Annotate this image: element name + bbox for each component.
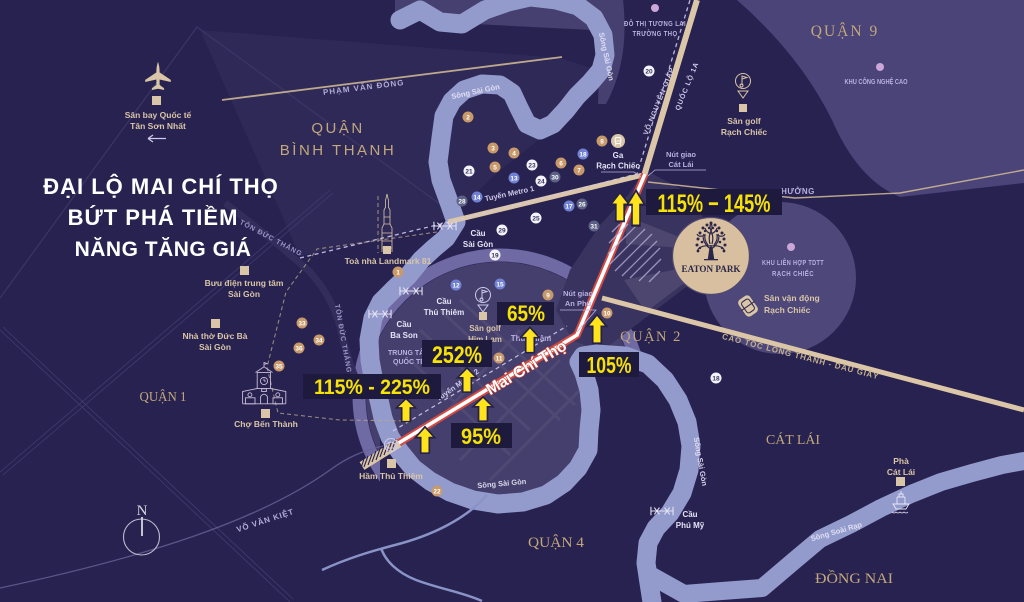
svg-text:252%: 252%	[432, 342, 482, 369]
svg-text:21: 21	[465, 168, 473, 175]
svg-text:9: 9	[546, 292, 550, 299]
svg-text:65%: 65%	[507, 301, 545, 326]
svg-text:N: N	[137, 503, 148, 519]
svg-text:Thủ Thiêm: Thủ Thiêm	[424, 308, 464, 317]
svg-text:Cầu: Cầu	[436, 297, 451, 306]
svg-text:Nút giao: Nút giao	[666, 150, 696, 159]
svg-text:Rạch Chiếc: Rạch Chiếc	[721, 127, 768, 137]
svg-text:30: 30	[551, 174, 559, 181]
svg-text:11: 11	[496, 355, 503, 362]
svg-text:1: 1	[396, 269, 400, 276]
svg-text:18: 18	[579, 151, 587, 158]
svg-text:ĐẠI LỘ MAI CHÍ THỌ: ĐẠI LỘ MAI CHÍ THỌ	[43, 174, 279, 199]
svg-text:KHU LIÊN HỢP TDTT: KHU LIÊN HỢP TDTT	[762, 258, 824, 267]
svg-text:105%: 105%	[587, 352, 632, 378]
svg-text:7: 7	[577, 167, 581, 174]
svg-text:18: 18	[712, 375, 720, 382]
svg-text:17: 17	[565, 203, 573, 210]
svg-text:Cầu: Cầu	[470, 229, 485, 238]
svg-text:15: 15	[496, 281, 504, 288]
svg-text:Rạch Chiếc: Rạch Chiếc	[596, 162, 640, 171]
svg-text:31: 31	[590, 223, 598, 230]
svg-text:36: 36	[295, 345, 303, 352]
svg-text:Bưu điện trung tâm: Bưu điện trung tâm	[205, 278, 284, 288]
svg-text:ĐỒNG NAI: ĐỒNG NAI	[815, 569, 893, 587]
svg-text:14: 14	[473, 194, 481, 201]
svg-text:Ba Son: Ba Son	[390, 331, 418, 340]
svg-text:12: 12	[452, 282, 460, 289]
svg-text:Nhà thờ Đức Bà: Nhà thờ Đức Bà	[182, 331, 247, 341]
svg-text:29: 29	[498, 227, 506, 234]
svg-text:6: 6	[559, 160, 563, 167]
svg-text:An Phú: An Phú	[565, 299, 592, 308]
svg-text:34: 34	[315, 337, 323, 344]
svg-text:3: 3	[491, 145, 495, 152]
svg-text:22: 22	[433, 488, 441, 495]
svg-text:Tân Sơn Nhất: Tân Sơn Nhất	[130, 121, 186, 131]
svg-text:Rạch Chiếc: Rạch Chiếc	[764, 305, 811, 315]
svg-text:20: 20	[645, 68, 653, 75]
svg-text:Hầm Thủ Thiêm: Hầm Thủ Thiêm	[359, 471, 423, 481]
svg-text:QUẬN 9: QUẬN 9	[811, 23, 879, 40]
svg-text:19: 19	[491, 252, 499, 259]
svg-text:115% - 225%: 115% - 225%	[314, 376, 430, 399]
svg-text:35: 35	[275, 363, 283, 370]
svg-text:Phà: Phà	[893, 456, 909, 466]
svg-text:Chợ Bến Thành: Chợ Bến Thành	[234, 419, 298, 429]
svg-text:Sài Gòn: Sài Gòn	[228, 289, 260, 299]
svg-text:Cầu: Cầu	[396, 320, 411, 329]
svg-text:Sài Gòn: Sài Gòn	[199, 342, 231, 352]
svg-text:115% − 145%: 115% − 145%	[658, 190, 771, 218]
svg-text:10: 10	[603, 310, 611, 317]
svg-text:Sân vận động: Sân vận động	[764, 293, 820, 303]
svg-text:33: 33	[298, 320, 306, 327]
svg-text:QUẬN: QUẬN	[311, 120, 364, 137]
svg-text:Cát Lái: Cát Lái	[668, 160, 693, 169]
svg-text:QUẬN 2: QUẬN 2	[620, 328, 682, 345]
svg-text:4: 4	[512, 150, 516, 157]
svg-text:CÁT LÁI: CÁT LÁI	[766, 431, 820, 448]
svg-text:2: 2	[466, 114, 470, 121]
svg-text:Sân golf: Sân golf	[727, 116, 761, 126]
svg-text:Sân bay Quốc tế: Sân bay Quốc tế	[125, 110, 192, 120]
svg-text:28: 28	[458, 198, 466, 205]
svg-text:ĐÔ THỊ TƯƠNG LAI: ĐÔ THỊ TƯƠNG LAI	[624, 19, 686, 28]
svg-text:24: 24	[537, 178, 545, 185]
svg-text:TRƯỜNG THỌ: TRƯỜNG THỌ	[633, 29, 678, 38]
svg-text:QUẬN 4: QUẬN 4	[528, 534, 584, 551]
svg-text:95%: 95%	[461, 424, 501, 449]
svg-text:13: 13	[510, 175, 518, 182]
svg-text:Cát Lái: Cát Lái	[887, 467, 915, 477]
svg-text:5: 5	[493, 164, 497, 171]
svg-text:NĂNG TĂNG GIÁ: NĂNG TĂNG GIÁ	[75, 238, 252, 261]
svg-text:26: 26	[578, 201, 586, 208]
svg-text:Phú Mỹ: Phú Mỹ	[676, 521, 705, 530]
svg-text:Cầu: Cầu	[682, 510, 697, 519]
svg-text:Sân golf: Sân golf	[469, 324, 501, 333]
svg-text:Nút giao: Nút giao	[563, 289, 593, 298]
svg-text:Ga: Ga	[613, 151, 624, 160]
svg-text:8: 8	[600, 138, 604, 145]
svg-text:RẠCH CHIẾC: RẠCH CHIẾC	[772, 268, 814, 278]
svg-text:23: 23	[528, 162, 536, 169]
svg-text:Sài Gòn: Sài Gòn	[463, 240, 493, 249]
svg-text:Toà nhà Landmark 81: Toà nhà Landmark 81	[345, 256, 432, 266]
svg-text:25: 25	[532, 215, 540, 222]
svg-text:HƯỞNG: HƯỞNG	[781, 187, 815, 196]
svg-text:BÌNH THẠNH: BÌNH THẠNH	[280, 142, 396, 159]
svg-text:EATON PARK: EATON PARK	[682, 264, 741, 274]
svg-text:QUẬN 1: QUẬN 1	[140, 388, 187, 405]
svg-text:KHU CÔNG NGHỆ CAO: KHU CÔNG NGHỆ CAO	[845, 77, 908, 86]
svg-text:BỨT PHÁ TIỀM: BỨT PHÁ TIỀM	[68, 205, 239, 230]
